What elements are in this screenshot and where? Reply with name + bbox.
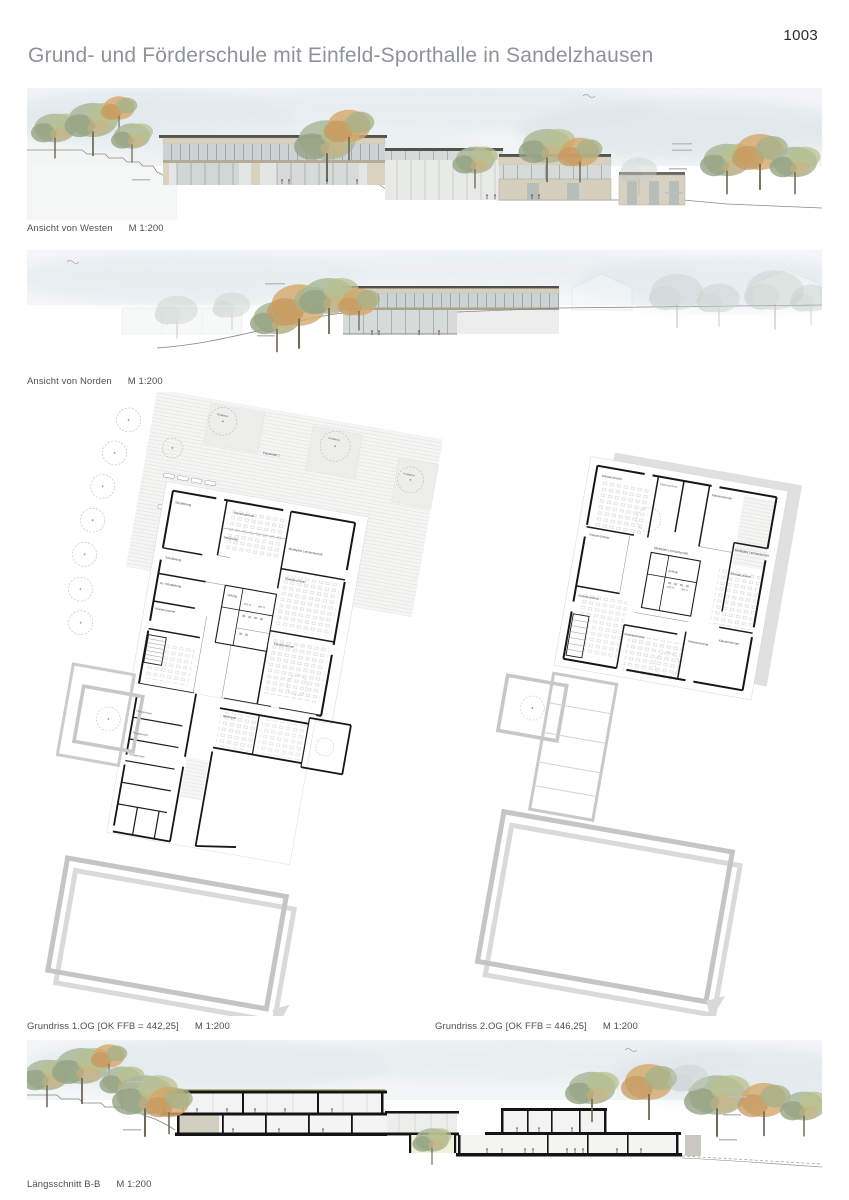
caption-section: Längsschnitt B-BM 1:200 (27, 1179, 151, 1190)
caption-west-scale: M 1:200 (129, 223, 164, 234)
caption-west-label: Ansicht von Westen (27, 223, 113, 234)
north-elevation-drawing (27, 250, 822, 370)
plan-1og: Pausenhof 2 Freiklasse Freiklasse Freikl… (27, 392, 443, 1016)
building-2og (554, 456, 788, 700)
caption-north: Ansicht von NordenM 1:200 (27, 376, 163, 387)
floor-plans-drawing: Pausenhof 2 Freiklasse Freiklasse Freikl… (27, 392, 822, 1016)
section-drawing (27, 1040, 822, 1176)
page-title: Grund- und Förderschule mit Einfeld-Spor… (28, 44, 653, 68)
street-trees (59, 403, 143, 639)
school-section (161, 1089, 387, 1136)
caption-north-scale: M 1:200 (128, 376, 163, 387)
terrain-right (682, 1156, 822, 1167)
caption-section-label: Längsschnitt B-B (27, 1179, 100, 1190)
competition-board-page: { "page": { "number": "1003", "title": "… (0, 0, 849, 1200)
building-1og (130, 481, 368, 723)
caption-plan2-scale: M 1:200 (603, 1021, 638, 1032)
page-number: 1003 (783, 27, 818, 44)
caption-plan2-label: Grundriss 2.OG [OK FFB = 446,25] (435, 1021, 587, 1032)
caption-section-scale: M 1:200 (116, 1179, 151, 1190)
caption-west: Ansicht von WestenM 1:200 (27, 223, 164, 234)
caption-plan2: Grundriss 2.OG [OK FFB = 446,25]M 1:200 (435, 1021, 638, 1032)
caption-plan1-scale: M 1:200 (195, 1021, 230, 1032)
caption-plan1: Grundriss 1.OG [OK FFB = 442,25]M 1:200 (27, 1021, 230, 1032)
plan-2og: Klassenzimmer Klassenzimmer Klassenzimme… (455, 441, 815, 1016)
caption-plan1-label: Grundriss 1.OG [OK FFB = 442,25] (27, 1021, 179, 1032)
caption-north-label: Ansicht von Norden (27, 376, 112, 387)
west-elevation-drawing (27, 88, 822, 220)
ghost-outlines-1og (455, 665, 775, 1016)
